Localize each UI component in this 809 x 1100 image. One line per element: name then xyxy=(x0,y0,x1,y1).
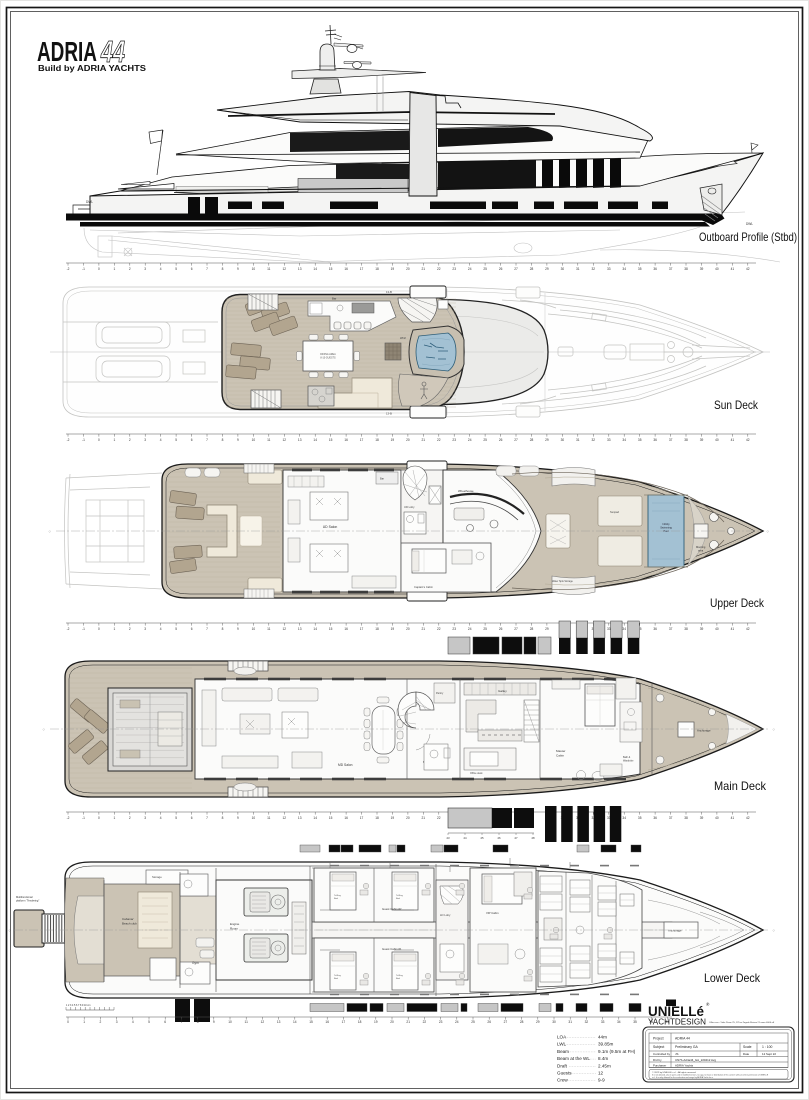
svg-text:Office xxx - Viale Prave 25, 1: Office xxx - Viale Prave 25, 125 m Zagre… xyxy=(709,1021,774,1024)
svg-text:12 Sept 22: 12 Sept 22 xyxy=(762,1052,776,1056)
svg-text:12: 12 xyxy=(283,627,287,631)
svg-text:19: 19 xyxy=(391,627,395,631)
svg-text:38: 38 xyxy=(684,438,688,442)
svg-text:36: 36 xyxy=(653,816,657,820)
svg-text:32: 32 xyxy=(592,267,596,271)
svg-text:41: 41 xyxy=(731,816,735,820)
svg-text:28: 28 xyxy=(530,627,534,631)
svg-text:18: 18 xyxy=(375,267,379,271)
svg-text:7: 7 xyxy=(206,267,208,271)
svg-text:DWL: DWL xyxy=(746,222,753,226)
svg-text:Beach club: Beach club xyxy=(122,921,137,925)
svg-text:41: 41 xyxy=(731,627,735,631)
svg-text:DWL: DWL xyxy=(86,200,93,204)
svg-text:34: 34 xyxy=(617,1020,621,1024)
svg-text:3: 3 xyxy=(144,627,146,631)
svg-text:ADRIA Yachts: ADRIA Yachts xyxy=(675,1063,694,1067)
svg-text:24: 24 xyxy=(468,438,472,442)
svg-text:Bar: Bar xyxy=(380,477,384,481)
svg-text:23: 23 xyxy=(446,836,450,840)
svg-text:3: 3 xyxy=(116,1020,118,1024)
svg-text:s.r.l. It is only allowed for: s.r.l. It is only allowed for the evalua… xyxy=(652,1076,714,1079)
svg-text:23: 23 xyxy=(452,438,456,442)
svg-text:11: 11 xyxy=(267,438,271,442)
svg-text:28: 28 xyxy=(530,267,534,271)
svg-text:13-B: 13-B xyxy=(386,412,392,416)
svg-text:10: 10 xyxy=(252,816,256,820)
svg-text:4: 4 xyxy=(160,438,162,442)
svg-text:Sun Deck: Sun Deck xyxy=(714,398,759,412)
svg-text:36: 36 xyxy=(653,438,657,442)
svg-text:Lower Deck: Lower Deck xyxy=(704,971,761,985)
svg-text:-2: -2 xyxy=(67,816,70,820)
svg-text:-1: -1 xyxy=(82,627,85,631)
svg-text:11: 11 xyxy=(267,816,271,820)
svg-text:Project: Project xyxy=(653,1037,664,1041)
svg-text:42: 42 xyxy=(746,438,750,442)
svg-text:21: 21 xyxy=(422,438,426,442)
svg-text:0: 0 xyxy=(67,1020,69,1024)
svg-text:38: 38 xyxy=(684,627,688,631)
svg-text:3: 3 xyxy=(144,816,146,820)
svg-text:26: 26 xyxy=(499,267,503,271)
svg-text:16: 16 xyxy=(344,627,348,631)
svg-text:24: 24 xyxy=(455,1020,459,1024)
svg-text:Bar: Bar xyxy=(332,297,336,301)
svg-text:19: 19 xyxy=(391,267,395,271)
svg-text:-2: -2 xyxy=(67,438,70,442)
svg-text:-1: -1 xyxy=(82,438,85,442)
svg-text:8: 8 xyxy=(222,816,224,820)
svg-text:Upper Deck: Upper Deck xyxy=(710,596,765,610)
svg-text:9: 9 xyxy=(237,816,239,820)
svg-text:29: 29 xyxy=(545,438,549,442)
svg-text:Cabana/: Cabana/ xyxy=(122,917,134,921)
svg-text:8.4m: 8.4m xyxy=(598,1056,608,1061)
svg-text:-2: -2 xyxy=(67,627,70,631)
svg-text:22: 22 xyxy=(437,267,441,271)
svg-text:12: 12 xyxy=(283,438,287,442)
svg-text:13: 13 xyxy=(298,627,302,631)
svg-text:12: 12 xyxy=(261,1020,265,1024)
svg-text:20: 20 xyxy=(406,267,410,271)
svg-text:41: 41 xyxy=(731,438,735,442)
svg-text:15: 15 xyxy=(329,816,333,820)
svg-text:40: 40 xyxy=(715,816,719,820)
svg-text:© 2022 by UNIELLE s.r.l. - All: © 2022 by UNIELLE s.r.l. - All rights re… xyxy=(652,1071,696,1074)
svg-text:13: 13 xyxy=(298,267,302,271)
svg-text:35: 35 xyxy=(638,267,642,271)
svg-text:42: 42 xyxy=(746,627,750,631)
svg-text:22: 22 xyxy=(437,627,441,631)
svg-text:Master: Master xyxy=(556,749,565,753)
svg-text:4: 4 xyxy=(160,816,162,820)
svg-text:21: 21 xyxy=(422,627,426,631)
svg-text:40: 40 xyxy=(715,627,719,631)
svg-text:1: 1 xyxy=(114,267,116,271)
svg-text:7: 7 xyxy=(181,1020,183,1024)
svg-text:25: 25 xyxy=(483,438,487,442)
svg-text:42: 42 xyxy=(746,816,750,820)
svg-text:1 2 3 4 5 6 7 8 9 10 cm: 1 2 3 4 5 6 7 8 9 10 cm xyxy=(66,1004,90,1007)
svg-text:Drd by: Drd by xyxy=(653,1058,662,1062)
svg-text:13: 13 xyxy=(298,438,302,442)
svg-text:39: 39 xyxy=(700,267,704,271)
svg-text:42: 42 xyxy=(746,267,750,271)
svg-text:14: 14 xyxy=(313,438,317,442)
svg-text:14: 14 xyxy=(313,816,317,820)
svg-text:20: 20 xyxy=(406,627,410,631)
svg-text:2: 2 xyxy=(129,438,131,442)
svg-text:38: 38 xyxy=(684,267,688,271)
svg-text:⌔: ⌔ xyxy=(8,929,11,933)
svg-text:⌔: ⌔ xyxy=(42,728,45,732)
svg-text:Guest Cabin #1: Guest Cabin #1 xyxy=(382,947,402,951)
svg-text:21: 21 xyxy=(422,267,426,271)
svg-text:34: 34 xyxy=(622,816,626,820)
svg-text:6: 6 xyxy=(191,627,193,631)
svg-text:1: 1 xyxy=(114,627,116,631)
svg-text:Sunpad: Sunpad xyxy=(610,510,620,514)
svg-text:7: 7 xyxy=(206,816,208,820)
svg-text:36: 36 xyxy=(653,627,657,631)
svg-text:12: 12 xyxy=(283,816,287,820)
svg-text:36: 36 xyxy=(653,267,657,271)
svg-text:5: 5 xyxy=(175,627,177,631)
svg-text:18: 18 xyxy=(375,816,379,820)
svg-text:35: 35 xyxy=(638,438,642,442)
svg-text:To/Kng: To/Kng xyxy=(396,975,404,977)
svg-text:7: 7 xyxy=(206,438,208,442)
svg-text:Draft: Draft xyxy=(557,1063,568,1068)
svg-text:33: 33 xyxy=(607,267,611,271)
svg-text:25: 25 xyxy=(480,836,484,840)
svg-text:30: 30 xyxy=(561,438,565,442)
svg-text:32: 32 xyxy=(592,438,596,442)
svg-text:29: 29 xyxy=(545,267,549,271)
svg-text:Guests: Guests xyxy=(557,1071,572,1076)
svg-text:7: 7 xyxy=(206,627,208,631)
svg-text:15: 15 xyxy=(329,438,333,442)
svg-text:2: 2 xyxy=(129,267,131,271)
svg-text:10: 10 xyxy=(228,1020,232,1024)
svg-text:13-B: 13-B xyxy=(386,290,392,294)
svg-text:23: 23 xyxy=(439,1020,443,1024)
svg-text:23: 23 xyxy=(452,627,456,631)
svg-text:11: 11 xyxy=(245,1020,249,1024)
svg-text:37: 37 xyxy=(669,438,673,442)
svg-text:30: 30 xyxy=(561,267,565,271)
svg-text:10: 10 xyxy=(252,267,256,271)
svg-text:28: 28 xyxy=(530,438,534,442)
svg-text:platform “Tendering”: platform “Tendering” xyxy=(16,899,39,903)
svg-text:Whirl: Whirl xyxy=(400,336,406,340)
svg-text:17: 17 xyxy=(360,438,364,442)
svg-text:14: 14 xyxy=(313,627,317,631)
svg-text:15: 15 xyxy=(329,267,333,271)
svg-text:8: 8 xyxy=(222,627,224,631)
svg-text:11: 11 xyxy=(267,267,271,271)
svg-text:area: area xyxy=(698,548,704,552)
svg-text:11: 11 xyxy=(267,627,271,631)
svg-text:Water Spts Storage: Water Spts Storage xyxy=(552,580,573,583)
svg-text:UN7b-Adria44_GA_220412 Avg: UN7b-Adria44_GA_220412 Avg xyxy=(675,1058,716,1062)
svg-text:MD Salon: MD Salon xyxy=(338,763,353,767)
svg-text:26: 26 xyxy=(499,438,503,442)
svg-text:9-9: 9-9 xyxy=(598,1078,605,1083)
svg-text:39: 39 xyxy=(700,438,704,442)
svg-text:-2: -2 xyxy=(67,267,70,271)
svg-text:Scale: Scale xyxy=(743,1045,752,1049)
svg-text:31: 31 xyxy=(568,1020,572,1024)
svg-text:25: 25 xyxy=(483,267,487,271)
svg-text:26: 26 xyxy=(497,836,501,840)
svg-text:1 : 100: 1 : 100 xyxy=(762,1045,772,1049)
svg-text:16: 16 xyxy=(344,438,348,442)
svg-text:39: 39 xyxy=(700,816,704,820)
svg-text:13: 13 xyxy=(298,816,302,820)
svg-text:22: 22 xyxy=(437,816,441,820)
svg-text:21: 21 xyxy=(422,816,426,820)
svg-text:8: 8 xyxy=(197,1020,199,1024)
svg-text:19: 19 xyxy=(374,1020,378,1024)
svg-text:Wheelhouse: Wheelhouse xyxy=(458,489,474,493)
svg-text:30: 30 xyxy=(552,1020,556,1024)
svg-text:Beam at the WL: Beam at the WL xyxy=(557,1056,590,1061)
svg-text:4: 4 xyxy=(132,1020,134,1024)
svg-text:Anchorage: Anchorage xyxy=(668,929,682,933)
svg-text:VIP Cabin: VIP Cabin xyxy=(486,911,499,915)
svg-text:Controlled by: Controlled by xyxy=(653,1052,671,1056)
svg-text:37: 37 xyxy=(669,816,673,820)
svg-text:10: 10 xyxy=(252,627,256,631)
svg-text:13: 13 xyxy=(277,1020,281,1024)
svg-text:LOA: LOA xyxy=(557,1035,567,1040)
svg-text:Build by ADRIA YACHTS: Build by ADRIA YACHTS xyxy=(38,64,147,73)
svg-text:29: 29 xyxy=(536,1020,540,1024)
svg-text:Crew: Crew xyxy=(557,1078,568,1083)
svg-text:34: 34 xyxy=(622,438,626,442)
svg-text:2.45m: 2.45m xyxy=(598,1063,611,1068)
svg-text:5: 5 xyxy=(148,1020,150,1024)
svg-text:20: 20 xyxy=(406,816,410,820)
svg-text:8: 8 xyxy=(222,267,224,271)
svg-text:4: 4 xyxy=(160,267,162,271)
svg-text:20: 20 xyxy=(390,1020,394,1024)
svg-text:LD Loby: LD Loby xyxy=(440,913,451,917)
svg-text:17: 17 xyxy=(360,816,364,820)
svg-text:40: 40 xyxy=(715,267,719,271)
svg-text:Cabin: Cabin xyxy=(556,753,564,757)
svg-text:18: 18 xyxy=(358,1020,362,1024)
svg-text:25: 25 xyxy=(483,627,487,631)
svg-text:3: 3 xyxy=(144,267,146,271)
svg-text:17: 17 xyxy=(342,1020,346,1024)
svg-text:1: 1 xyxy=(114,438,116,442)
svg-text:0: 0 xyxy=(98,438,100,442)
svg-text:17: 17 xyxy=(360,627,364,631)
svg-text:2: 2 xyxy=(129,816,131,820)
svg-text:9: 9 xyxy=(213,1020,215,1024)
svg-text:6: 6 xyxy=(191,267,193,271)
svg-text:Pantry: Pantry xyxy=(436,692,444,695)
svg-text:1: 1 xyxy=(83,1020,85,1024)
svg-text:0: 0 xyxy=(98,816,100,820)
svg-text:5: 5 xyxy=(175,438,177,442)
svg-text:Multifunctional: Multifunctional xyxy=(16,895,33,899)
svg-text:To/Kng: To/Kng xyxy=(334,895,342,897)
svg-text:33: 33 xyxy=(607,627,611,631)
svg-text:28: 28 xyxy=(520,1020,524,1024)
svg-text:Engine: Engine xyxy=(230,922,240,926)
svg-text:32: 32 xyxy=(585,1020,589,1024)
svg-text:24: 24 xyxy=(468,267,472,271)
svg-text:35: 35 xyxy=(638,816,642,820)
svg-text:38: 38 xyxy=(684,816,688,820)
svg-text:19: 19 xyxy=(391,816,395,820)
svg-text:Galley: Galley xyxy=(498,689,507,693)
svg-text:18: 18 xyxy=(375,438,379,442)
svg-text:40: 40 xyxy=(715,438,719,442)
svg-text:⌔: ⌔ xyxy=(772,929,775,933)
svg-text:44m: 44m xyxy=(598,1035,607,1040)
svg-text:6: 6 xyxy=(191,816,193,820)
svg-text:34: 34 xyxy=(622,267,626,271)
svg-text:5: 5 xyxy=(175,816,177,820)
svg-text:YACHTDESIGN: YACHTDESIGN xyxy=(648,1017,706,1027)
svg-text:14: 14 xyxy=(313,267,317,271)
svg-text:15: 15 xyxy=(329,627,333,631)
svg-text:5: 5 xyxy=(175,267,177,271)
svg-text:34: 34 xyxy=(622,627,626,631)
svg-text:20: 20 xyxy=(406,438,410,442)
svg-text:ADRIA: ADRIA xyxy=(37,36,97,67)
svg-text:-1: -1 xyxy=(82,267,85,271)
svg-text:0: 0 xyxy=(98,267,100,271)
svg-text:24: 24 xyxy=(463,836,467,840)
svg-text:27: 27 xyxy=(514,627,518,631)
svg-text:2: 2 xyxy=(100,1020,102,1024)
svg-text:14: 14 xyxy=(293,1020,297,1024)
svg-text:27: 27 xyxy=(514,836,518,840)
svg-text:Beam: Beam xyxy=(557,1049,569,1054)
svg-text:39.85m: 39.85m xyxy=(598,1042,613,1047)
svg-text:9: 9 xyxy=(237,438,239,442)
svg-text:LWL: LWL xyxy=(557,1042,567,1047)
svg-text:ADRIA 44: ADRIA 44 xyxy=(675,1037,690,1041)
svg-text:37: 37 xyxy=(669,627,673,631)
svg-text:⌔: ⌔ xyxy=(772,728,775,732)
svg-text:Outboard Profile (Stbd): Outboard Profile (Stbd) xyxy=(699,230,797,244)
svg-text:23: 23 xyxy=(452,267,456,271)
svg-text:26: 26 xyxy=(499,627,503,631)
svg-text:Guest Cabin #2: Guest Cabin #2 xyxy=(382,907,402,911)
svg-text:Wardrobe: Wardrobe xyxy=(623,759,634,762)
svg-text:Gym: Gym xyxy=(192,961,199,965)
svg-text:22: 22 xyxy=(423,1020,427,1024)
svg-text:-1: -1 xyxy=(82,816,85,820)
svg-text:To/Kng: To/Kng xyxy=(334,975,342,977)
svg-text:9: 9 xyxy=(237,627,239,631)
svg-text:29: 29 xyxy=(545,627,549,631)
svg-text:12: 12 xyxy=(283,267,287,271)
svg-text:16: 16 xyxy=(325,1020,329,1024)
svg-text:3: 3 xyxy=(144,438,146,442)
svg-text:19: 19 xyxy=(391,438,395,442)
svg-text:27: 27 xyxy=(514,267,518,271)
svg-text:39: 39 xyxy=(700,627,704,631)
svg-text:37: 37 xyxy=(669,267,673,271)
svg-text:JS: JS xyxy=(675,1052,678,1056)
svg-text:16: 16 xyxy=(344,267,348,271)
svg-text:22: 22 xyxy=(437,438,441,442)
svg-text:16: 16 xyxy=(344,816,348,820)
svg-text:8: 8 xyxy=(222,438,224,442)
svg-text:Office desk: Office desk xyxy=(470,772,483,775)
svg-text:Captain's Cabin: Captain's Cabin xyxy=(414,585,433,589)
svg-text:Main Deck: Main Deck xyxy=(714,779,767,793)
svg-text:Pool: Pool xyxy=(663,530,668,533)
svg-text:Storage: Storage xyxy=(152,875,162,879)
svg-text:UD Salon: UD Salon xyxy=(323,525,338,529)
svg-text:6: 6 xyxy=(191,438,193,442)
svg-text:2: 2 xyxy=(129,627,131,631)
svg-text:10: 10 xyxy=(252,438,256,442)
svg-text:Mooring: Mooring xyxy=(696,545,706,549)
svg-text:9.1m (9.5m at FH): 9.1m (9.5m at FH) xyxy=(598,1049,636,1054)
svg-text:31: 31 xyxy=(576,267,580,271)
svg-text:26: 26 xyxy=(487,1020,491,1024)
svg-text:25: 25 xyxy=(471,1020,475,1024)
svg-text:1: 1 xyxy=(114,816,116,820)
svg-text:9: 9 xyxy=(237,267,239,271)
svg-text:Date: Date xyxy=(743,1052,749,1056)
svg-text:Preliminary GA: Preliminary GA xyxy=(675,1045,699,1049)
svg-text:8-10 GUESTS: 8-10 GUESTS xyxy=(320,356,336,359)
svg-text:UD Loby: UD Loby xyxy=(404,505,415,509)
svg-text:24: 24 xyxy=(468,627,472,631)
svg-text:33: 33 xyxy=(607,438,611,442)
svg-text:41: 41 xyxy=(731,267,735,271)
svg-text:31: 31 xyxy=(576,438,580,442)
svg-text:⌔: ⌔ xyxy=(48,530,51,534)
svg-text:6: 6 xyxy=(164,1020,166,1024)
svg-text:To/Kng: To/Kng xyxy=(396,895,404,897)
svg-text:27: 27 xyxy=(504,1020,508,1024)
svg-text:4: 4 xyxy=(160,627,162,631)
svg-text:Subject: Subject xyxy=(653,1045,664,1049)
svg-text:18: 18 xyxy=(375,627,379,631)
svg-text:Purchaser: Purchaser xyxy=(653,1063,666,1067)
svg-text:35: 35 xyxy=(633,1020,637,1024)
svg-text:12: 12 xyxy=(598,1071,604,1076)
svg-text:27: 27 xyxy=(514,438,518,442)
svg-text:0: 0 xyxy=(98,627,100,631)
svg-text:33: 33 xyxy=(601,1020,605,1024)
svg-text:17: 17 xyxy=(360,267,364,271)
svg-text:28: 28 xyxy=(531,836,535,840)
svg-text:21: 21 xyxy=(406,1020,410,1024)
svg-text:15: 15 xyxy=(309,1020,313,1024)
svg-text:⌔: ⌔ xyxy=(766,530,769,534)
